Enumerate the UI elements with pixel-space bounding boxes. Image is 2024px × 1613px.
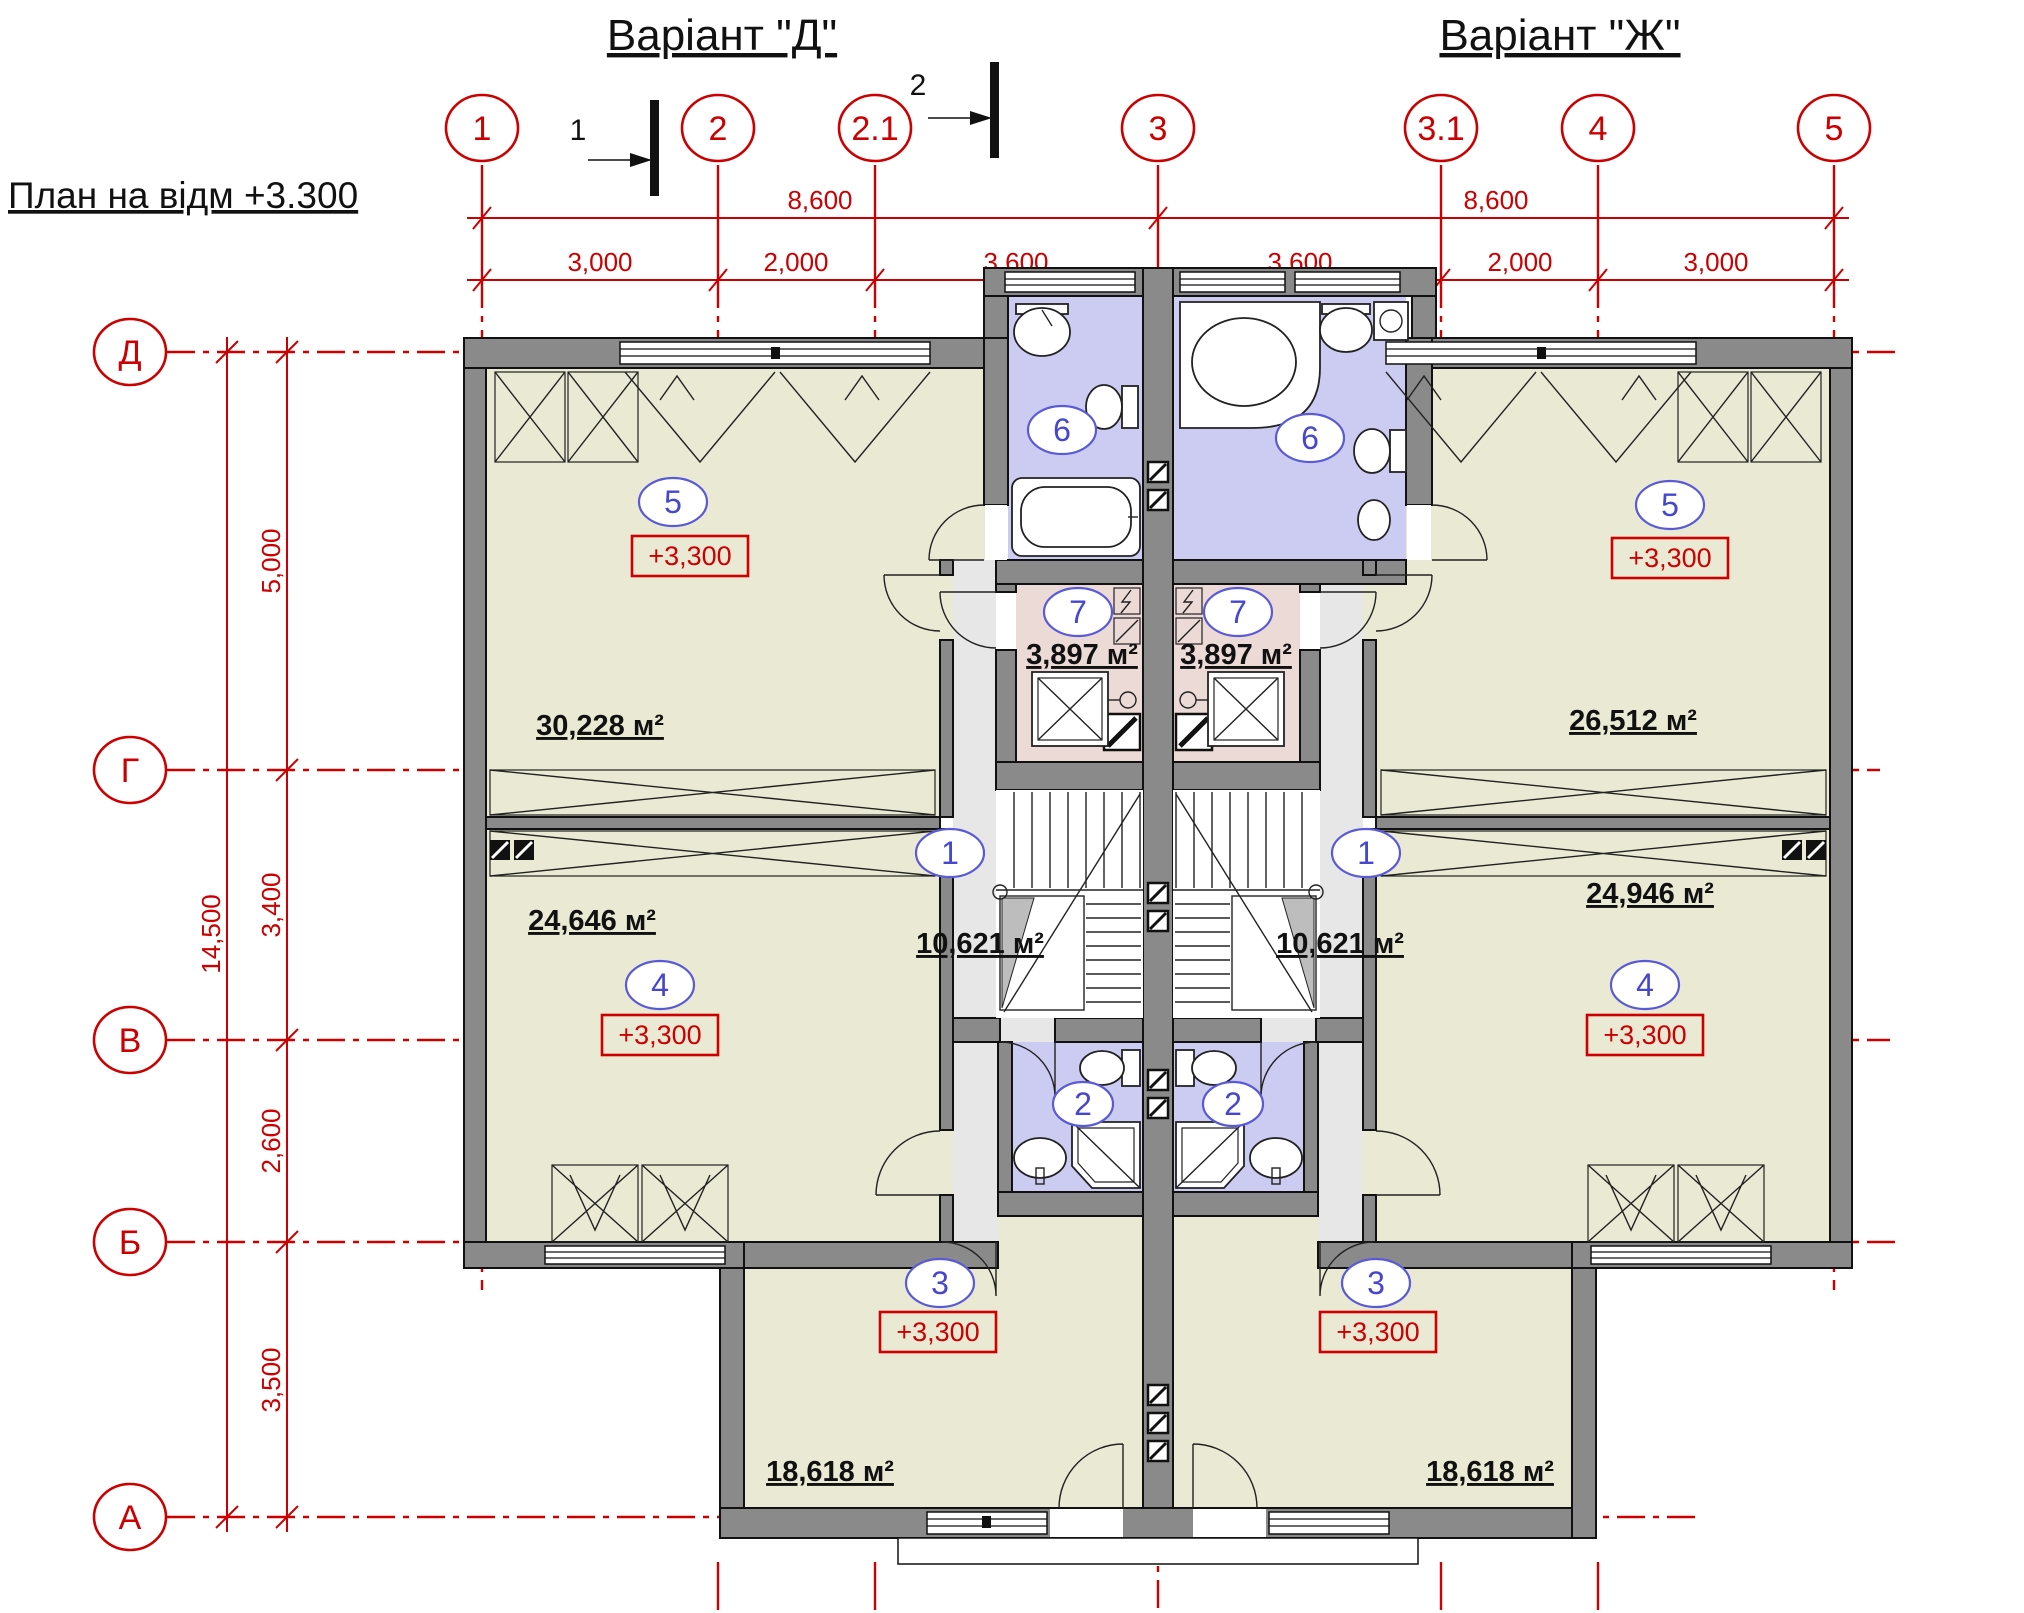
stairs-right xyxy=(1173,790,1323,1018)
room-4-right-area: 24,946 м² xyxy=(1586,878,1714,910)
room-3-right-elevation: +3,300 xyxy=(1336,1317,1419,1347)
axis-left-v: В xyxy=(119,1022,142,1060)
bath-2-left-number: 2 xyxy=(1074,1086,1092,1122)
sink-bowl-icon xyxy=(1014,308,1070,356)
axis-left-a: А xyxy=(119,1499,142,1537)
room-7-right-number: 7 xyxy=(1229,594,1247,630)
toilet-icon xyxy=(1080,1051,1124,1085)
bath-6-left-number: 6 xyxy=(1053,412,1071,448)
hall-right-number: 1 xyxy=(1357,835,1375,871)
dim-seg-5: 2,000 xyxy=(1487,247,1552,277)
toilet-icon xyxy=(1192,1051,1236,1085)
room-5-right-elevation: +3,300 xyxy=(1628,543,1711,573)
variant-left-title: Варіант "Д" xyxy=(607,11,837,60)
room-5-left-elevation: +3,300 xyxy=(648,541,731,571)
sink-bowl-icon xyxy=(1320,308,1372,352)
bath-6-right-number: 6 xyxy=(1301,420,1319,456)
dim-seg-1: 3,000 xyxy=(567,247,632,277)
axis-left-b: Б xyxy=(119,1224,141,1262)
room-5-left-number: 5 xyxy=(664,484,682,520)
hall-left-area: 10,621 м² xyxy=(916,928,1044,960)
plan-canvas: 8,600 8,600 3,000 2,000 3,600 3,600 2,00… xyxy=(0,0,2024,1613)
dim-total-height: 14,500 xyxy=(196,894,226,974)
dim-h-1: 5,000 xyxy=(256,528,286,593)
sink-bowl-icon xyxy=(1250,1138,1302,1178)
room-5-left-floor xyxy=(486,368,996,817)
axis-left-g: Г xyxy=(121,752,139,790)
axis-top-3: 3 xyxy=(1149,110,1168,148)
hall-right-area: 10,621 м² xyxy=(1276,928,1404,960)
room-7-left-number: 7 xyxy=(1069,594,1087,630)
dim-seg-2: 2,000 xyxy=(763,247,828,277)
dim-h-4: 3,500 xyxy=(256,1347,286,1412)
toilet-tank-icon xyxy=(1390,430,1406,472)
variant-right-title: Варіант "Ж" xyxy=(1439,11,1680,60)
toilet-tank-icon xyxy=(1122,386,1138,428)
room-4-left-number: 4 xyxy=(651,967,669,1003)
room-4-left-floor xyxy=(486,829,953,1242)
axis-top-2-1: 2.1 xyxy=(851,110,898,148)
stairs-left xyxy=(993,790,1143,1018)
axis-top-1: 1 xyxy=(473,110,492,148)
axis-top-2: 2 xyxy=(709,110,728,148)
sink-bowl-icon xyxy=(1014,1138,1066,1178)
bath-2-right-number: 2 xyxy=(1224,1086,1242,1122)
room-7-right-area: 3,897 м² xyxy=(1180,639,1292,671)
section-1-label: 1 xyxy=(570,114,587,147)
axis-bubbles-top: 1 2 2.1 3 3.1 4 5 xyxy=(446,95,1870,161)
dim-span-left: 8,600 xyxy=(787,185,852,215)
bidet-icon xyxy=(1358,500,1390,540)
room-4-right-number: 4 xyxy=(1636,967,1654,1003)
room-3-right-number: 3 xyxy=(1367,1265,1385,1301)
room-4-left-elevation: +3,300 xyxy=(618,1020,701,1050)
room-4-right-elevation: +3,300 xyxy=(1603,1020,1686,1050)
toilet-icon xyxy=(1354,429,1390,473)
room-3-left-elevation: +3,300 xyxy=(896,1317,979,1347)
dim-h-2: 3,400 xyxy=(256,872,286,937)
axis-top-4: 4 xyxy=(1589,110,1608,148)
axis-left-d: Д xyxy=(118,334,141,372)
room-5-right-number: 5 xyxy=(1661,487,1679,523)
plan-title: План на відм +3.300 xyxy=(8,175,358,216)
section-2-label: 2 xyxy=(910,69,927,102)
room-3-left-area: 18,618 м² xyxy=(766,1456,894,1488)
room-5-left-area: 30,228 м² xyxy=(536,710,664,742)
dim-span-right: 8,600 xyxy=(1463,185,1528,215)
dim-h-3: 2,600 xyxy=(256,1108,286,1173)
axis-bubbles-left: Д Г В Б А xyxy=(94,319,166,1550)
dim-seg-6: 3,000 xyxy=(1683,247,1748,277)
hall-left-number: 1 xyxy=(941,835,959,871)
room-3-left-number: 3 xyxy=(931,1265,949,1301)
axis-top-5: 5 xyxy=(1825,110,1844,148)
floor-plan-drawing: 8,600 8,600 3,000 2,000 3,600 3,600 2,00… xyxy=(0,0,2024,1613)
section-markers: 1 2 xyxy=(570,62,999,196)
room-5-right-area: 26,512 м² xyxy=(1569,705,1697,737)
axis-top-3-1: 3.1 xyxy=(1417,110,1464,148)
room-4-left-area: 24,646 м² xyxy=(528,905,656,937)
washing-machine-icon xyxy=(1374,302,1408,340)
room-3-right-area: 18,618 м² xyxy=(1426,1456,1554,1488)
room-7-left-area: 3,897 м² xyxy=(1026,639,1138,671)
